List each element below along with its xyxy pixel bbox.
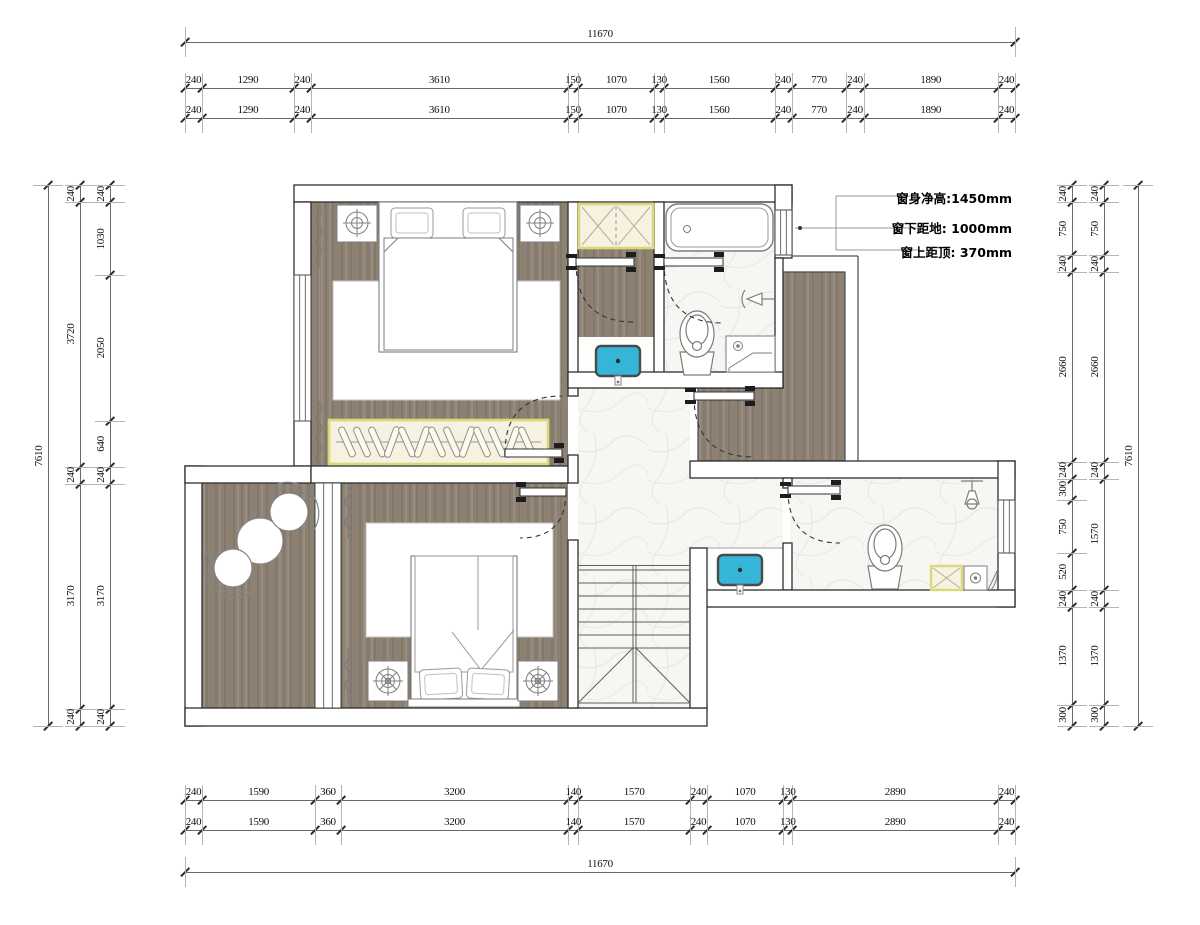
window-bedroom1-west (294, 275, 311, 421)
pillow (419, 668, 463, 700)
wall-closet-bath-divider (654, 202, 664, 380)
master-bedroom (316, 202, 560, 464)
floor-plan-drawing (0, 0, 1200, 925)
window-annotation-line2: 窗下距地: 1000mm (830, 218, 1012, 237)
wall-bath1-cloak-divider (775, 258, 783, 388)
storage-cabinet (579, 204, 653, 248)
blanket (415, 556, 513, 672)
wall-stairs-east (690, 548, 707, 708)
bathtub (666, 204, 773, 251)
wall-bath2-west-b (783, 543, 792, 590)
corridor-floor (578, 385, 690, 712)
wall-west-balcony (185, 466, 202, 726)
window-annotation-line3: 窗上距顶: 370mm (830, 242, 1012, 261)
window-bathroom2-east (998, 500, 1015, 553)
wall-top (294, 185, 792, 202)
vanity-counter (726, 336, 775, 372)
wall-step-left (185, 466, 311, 483)
passage-floor (690, 478, 783, 548)
wall-bedrooms-east-b (568, 455, 578, 483)
wall-bedrooms-east-c (568, 540, 578, 708)
wall-bedroom-divider (311, 466, 568, 483)
pillow (466, 668, 510, 700)
toilet (868, 525, 902, 589)
pillow (463, 208, 505, 238)
toilet (680, 311, 714, 375)
window-bathroom1-east (775, 210, 792, 255)
storage-box (931, 566, 962, 590)
wall-bedrooms-east-a (568, 202, 578, 396)
pillow (391, 208, 433, 238)
wall-bath2-north (690, 461, 1015, 478)
wall-bath2-south (698, 590, 1015, 607)
blanket (384, 238, 513, 350)
wall-bottom (185, 708, 707, 726)
floor-drain (964, 566, 987, 590)
window-annotation-line1: 窗身净高:1450mm (830, 188, 1012, 207)
headboard (408, 699, 520, 707)
